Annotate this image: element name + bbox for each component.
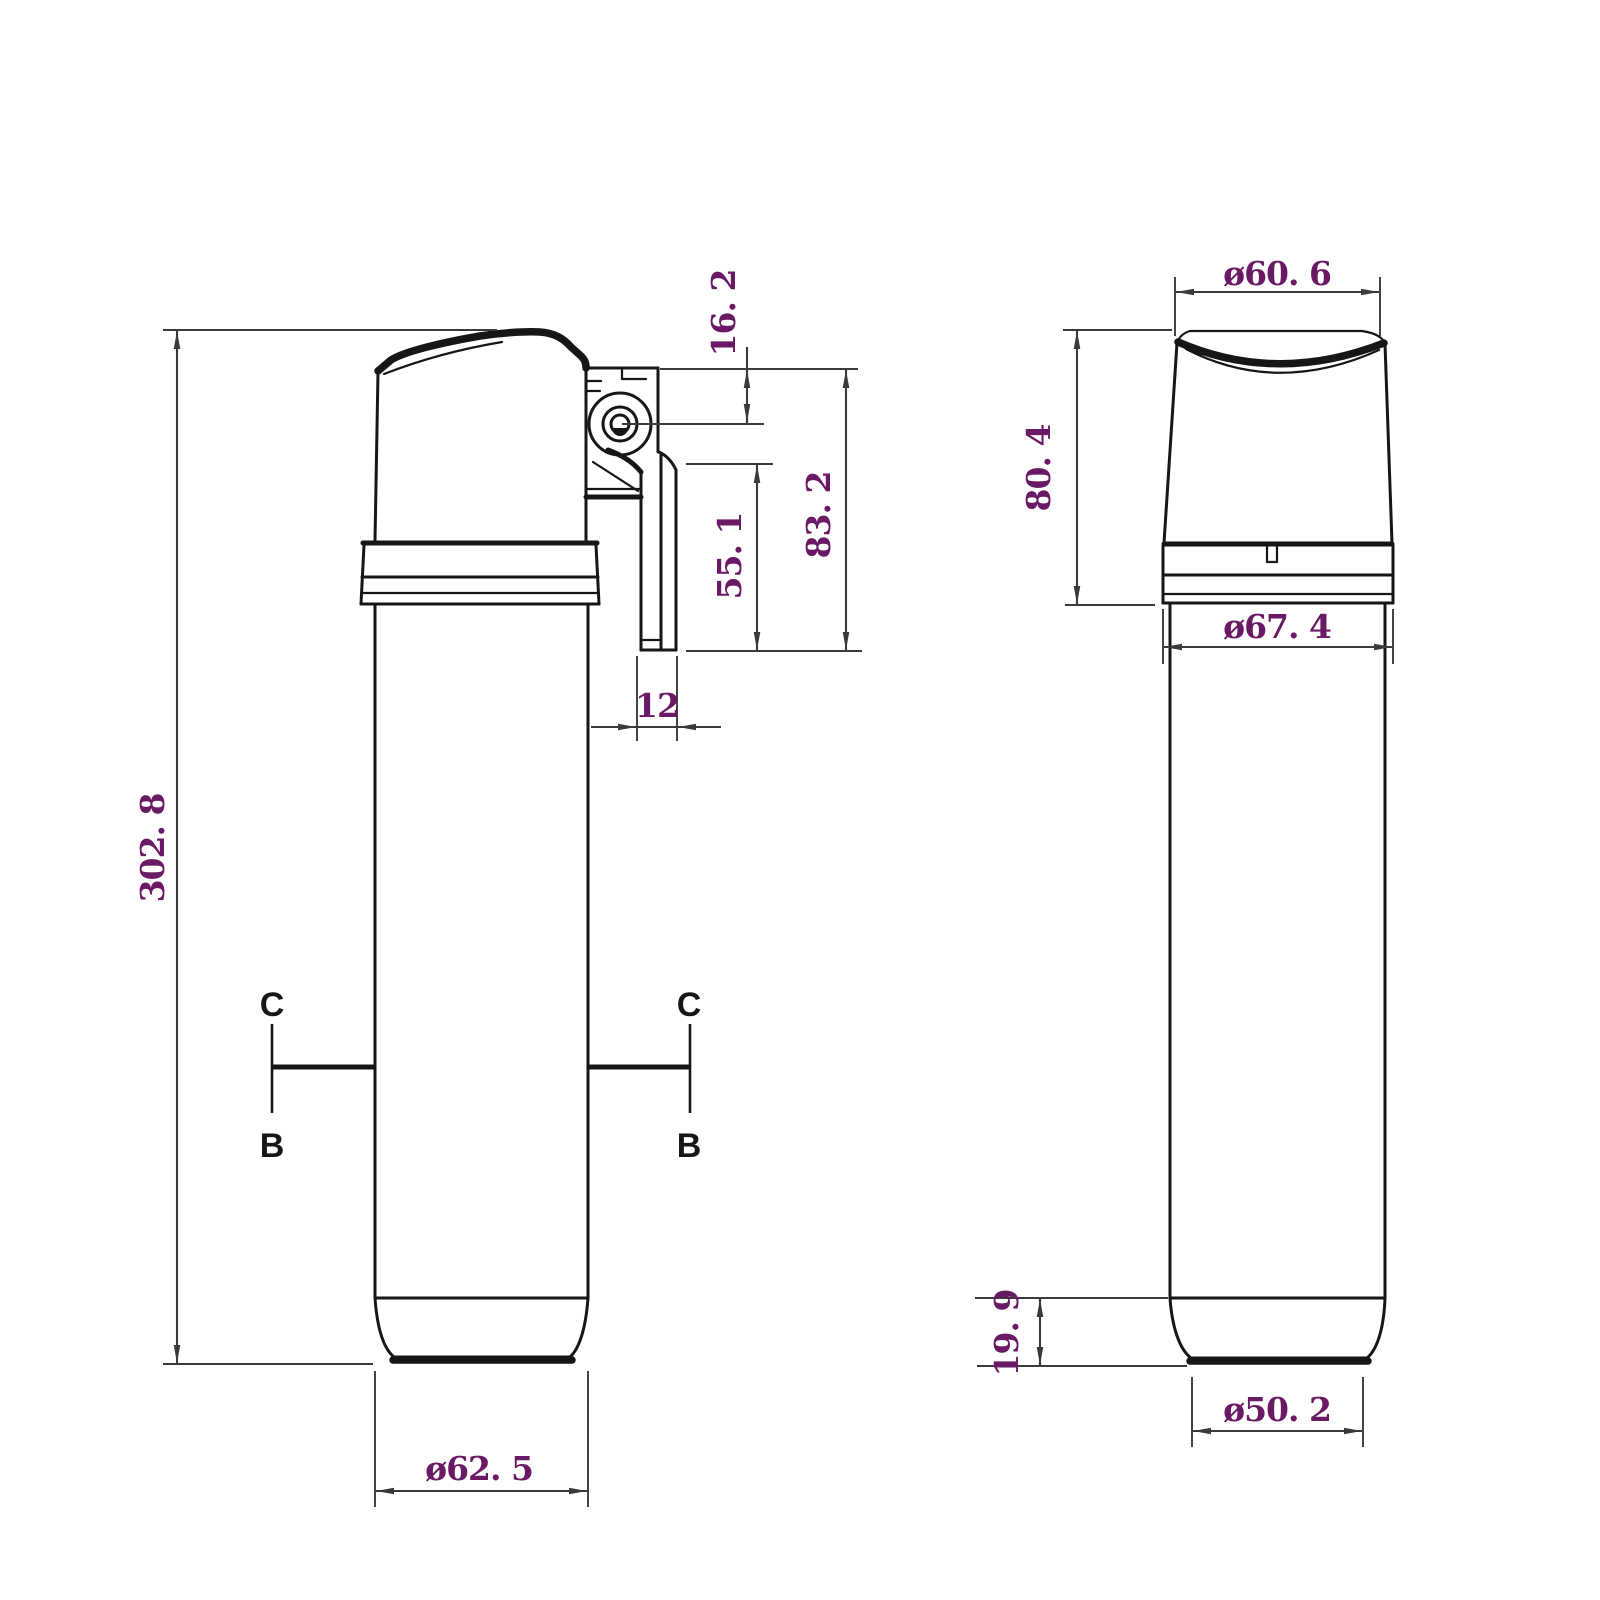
section-marker-right: C B <box>588 986 701 1165</box>
side-view-body <box>375 604 588 1298</box>
dim-top-to-bracket: 83. 2 <box>686 370 862 651</box>
dim-bottom-diameter: ø50. 2 <box>1192 1377 1363 1447</box>
dim-label-head-height: 80. 4 <box>1019 425 1058 512</box>
side-view-cap <box>375 332 586 541</box>
collar-right-edge <box>596 545 599 604</box>
front-view-body <box>1170 603 1385 1298</box>
dim-label-bottom-diameter: ø50. 2 <box>1223 1390 1331 1429</box>
dim-foot-height: 19. 9 <box>975 1290 1187 1377</box>
dim-label-top-diameter: ø60. 6 <box>1223 254 1331 293</box>
side-view: 302. 8 16. 2 83. 2 55. 1 <box>133 270 862 1507</box>
cap-left-edge <box>375 372 378 541</box>
dim-label-bracket-width: 12 <box>635 686 679 725</box>
valve-strut-line <box>593 462 638 491</box>
dim-bracket-width: 12 <box>591 656 721 741</box>
section-label-c-right: C <box>677 986 702 1024</box>
dim-collar-diameter: ø67. 4 <box>1163 607 1393 664</box>
section-label-c-left: C <box>260 986 285 1024</box>
dim-label-collar-diameter: ø67. 4 <box>1223 607 1331 646</box>
dim-base-diameter: ø62. 5 <box>375 1371 588 1507</box>
side-view-valve <box>586 368 658 497</box>
dim-label-port-to-bracket: 55. 1 <box>710 513 749 600</box>
dim-label-overall-height: 302. 8 <box>133 794 172 903</box>
dim-label-top-to-bracket: 83. 2 <box>799 472 838 559</box>
dim-overall-height: 302. 8 <box>133 330 497 1364</box>
dim-label-foot-height: 19. 9 <box>987 1290 1026 1377</box>
dim-label-top-to-port: 16. 2 <box>704 270 743 357</box>
foot-taper <box>375 1298 588 1357</box>
valve-mount-lines <box>587 381 601 391</box>
section-label-b-right: B <box>677 1127 702 1165</box>
collar-left-edge <box>361 545 364 604</box>
front-view: ø60. 6 80. 4 ø67. 4 19. 9 ø5 <box>975 254 1393 1447</box>
side-view-bracket <box>641 452 676 650</box>
valve-top-step <box>622 368 646 379</box>
drawing-canvas: 302. 8 16. 2 83. 2 55. 1 <box>0 0 1600 1600</box>
foot-taper <box>1170 1298 1385 1358</box>
technical-drawing: 302. 8 16. 2 83. 2 55. 1 <box>0 0 1600 1600</box>
dim-top-diameter: ø60. 6 <box>1175 254 1380 336</box>
side-view-collar <box>361 543 599 604</box>
section-label-b-left: B <box>260 1127 285 1165</box>
dim-label-base-diameter: ø62. 5 <box>425 1449 533 1488</box>
side-view-foot <box>375 1298 588 1360</box>
dim-head-height: 80. 4 <box>1019 330 1172 605</box>
cap-top-corners <box>1177 331 1385 344</box>
front-view-cap <box>1164 331 1392 562</box>
port-hole-shadow <box>612 428 628 436</box>
cap-left-edge <box>1164 343 1177 543</box>
section-marker-left: C B <box>260 986 374 1165</box>
cap-notch <box>1267 546 1277 562</box>
front-view-foot <box>1170 1298 1385 1361</box>
cap-right-edge <box>1385 344 1392 543</box>
dim-port-to-bracket: 55. 1 <box>686 464 773 650</box>
